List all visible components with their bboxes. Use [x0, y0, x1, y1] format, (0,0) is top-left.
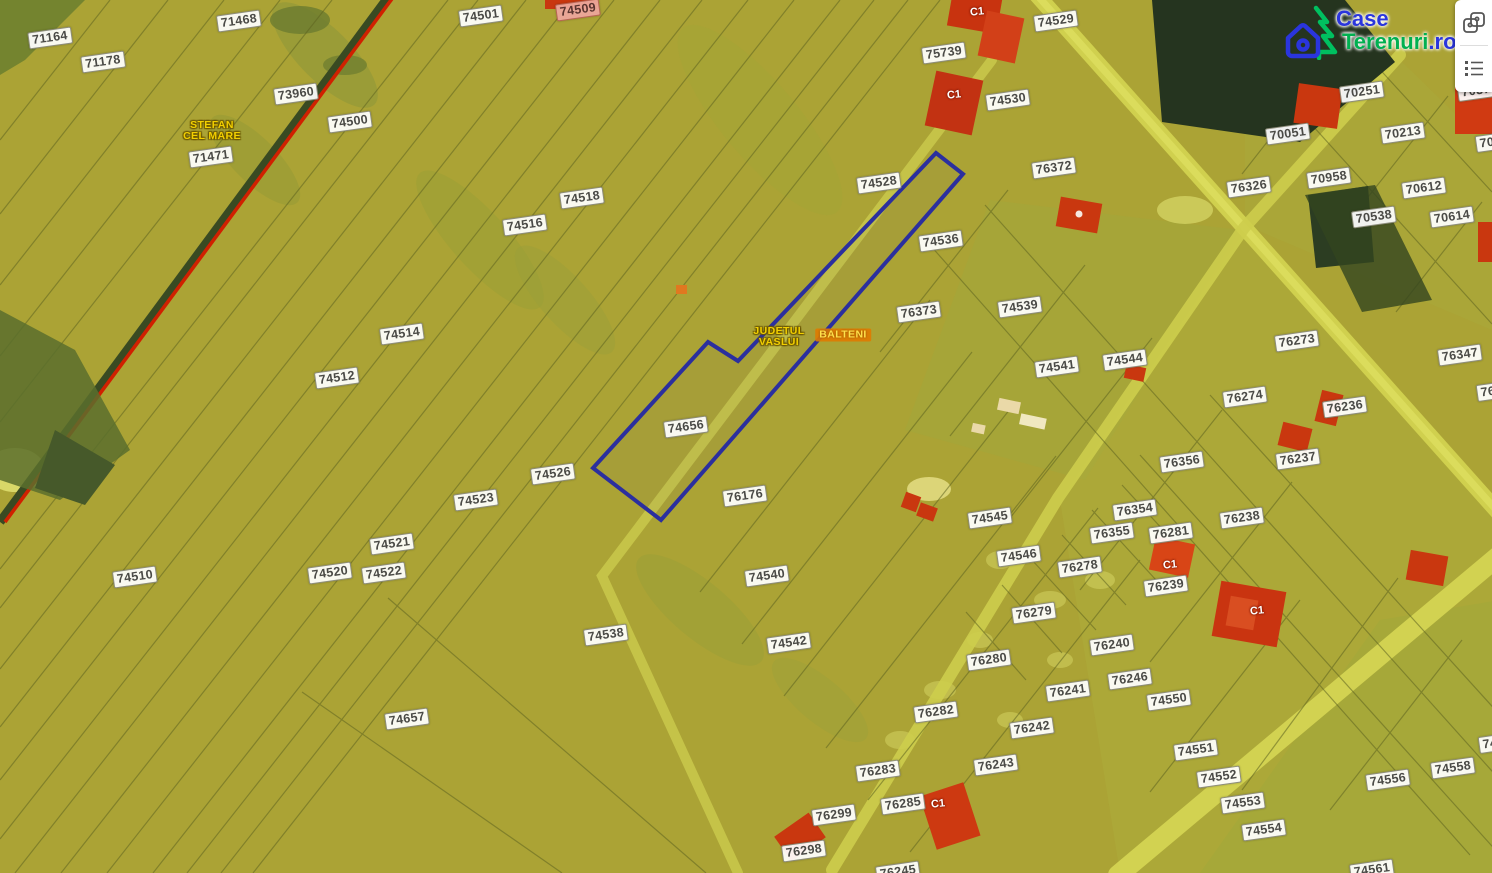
building-label: C1 [1162, 558, 1177, 571]
region-label: BALTENI [815, 329, 871, 342]
logo-text-ro: .ro [1428, 29, 1456, 54]
logo-text-terenuri: Terenuri [1342, 29, 1428, 54]
toolbar-divider [1460, 45, 1488, 46]
region-label: STEFANCEL MARE [183, 120, 241, 142]
compare-icon [1462, 11, 1486, 35]
legend-list-icon [1462, 57, 1486, 81]
legend-button[interactable] [1457, 50, 1490, 88]
map-canvas[interactable]: 7116471178714687396074500714717450174509… [0, 0, 1492, 873]
building-label: C1 [930, 797, 945, 810]
parcel-label-70[interactable]: 70 [1475, 133, 1492, 153]
logo-text-case: Case [1336, 6, 1389, 31]
parcel-label-76[interactable]: 76 [1476, 382, 1492, 402]
compare-button[interactable] [1457, 4, 1490, 42]
map-toolbar [1455, 0, 1492, 92]
parcel-label-74[interactable]: 74 [1478, 734, 1492, 754]
house-icon [1288, 25, 1318, 56]
building-label: C1 [969, 5, 984, 18]
region-label-line: BALTENI [819, 330, 867, 341]
region-label-line: VASLUI [753, 337, 804, 348]
building-label: C1 [946, 88, 961, 101]
building-label: C1 [1249, 604, 1264, 617]
logo[interactable]: Case Terenuri.ro [1272, 2, 1462, 60]
region-label: JUDETULVASLUI [753, 326, 804, 348]
region-label-line: CEL MARE [183, 131, 241, 142]
